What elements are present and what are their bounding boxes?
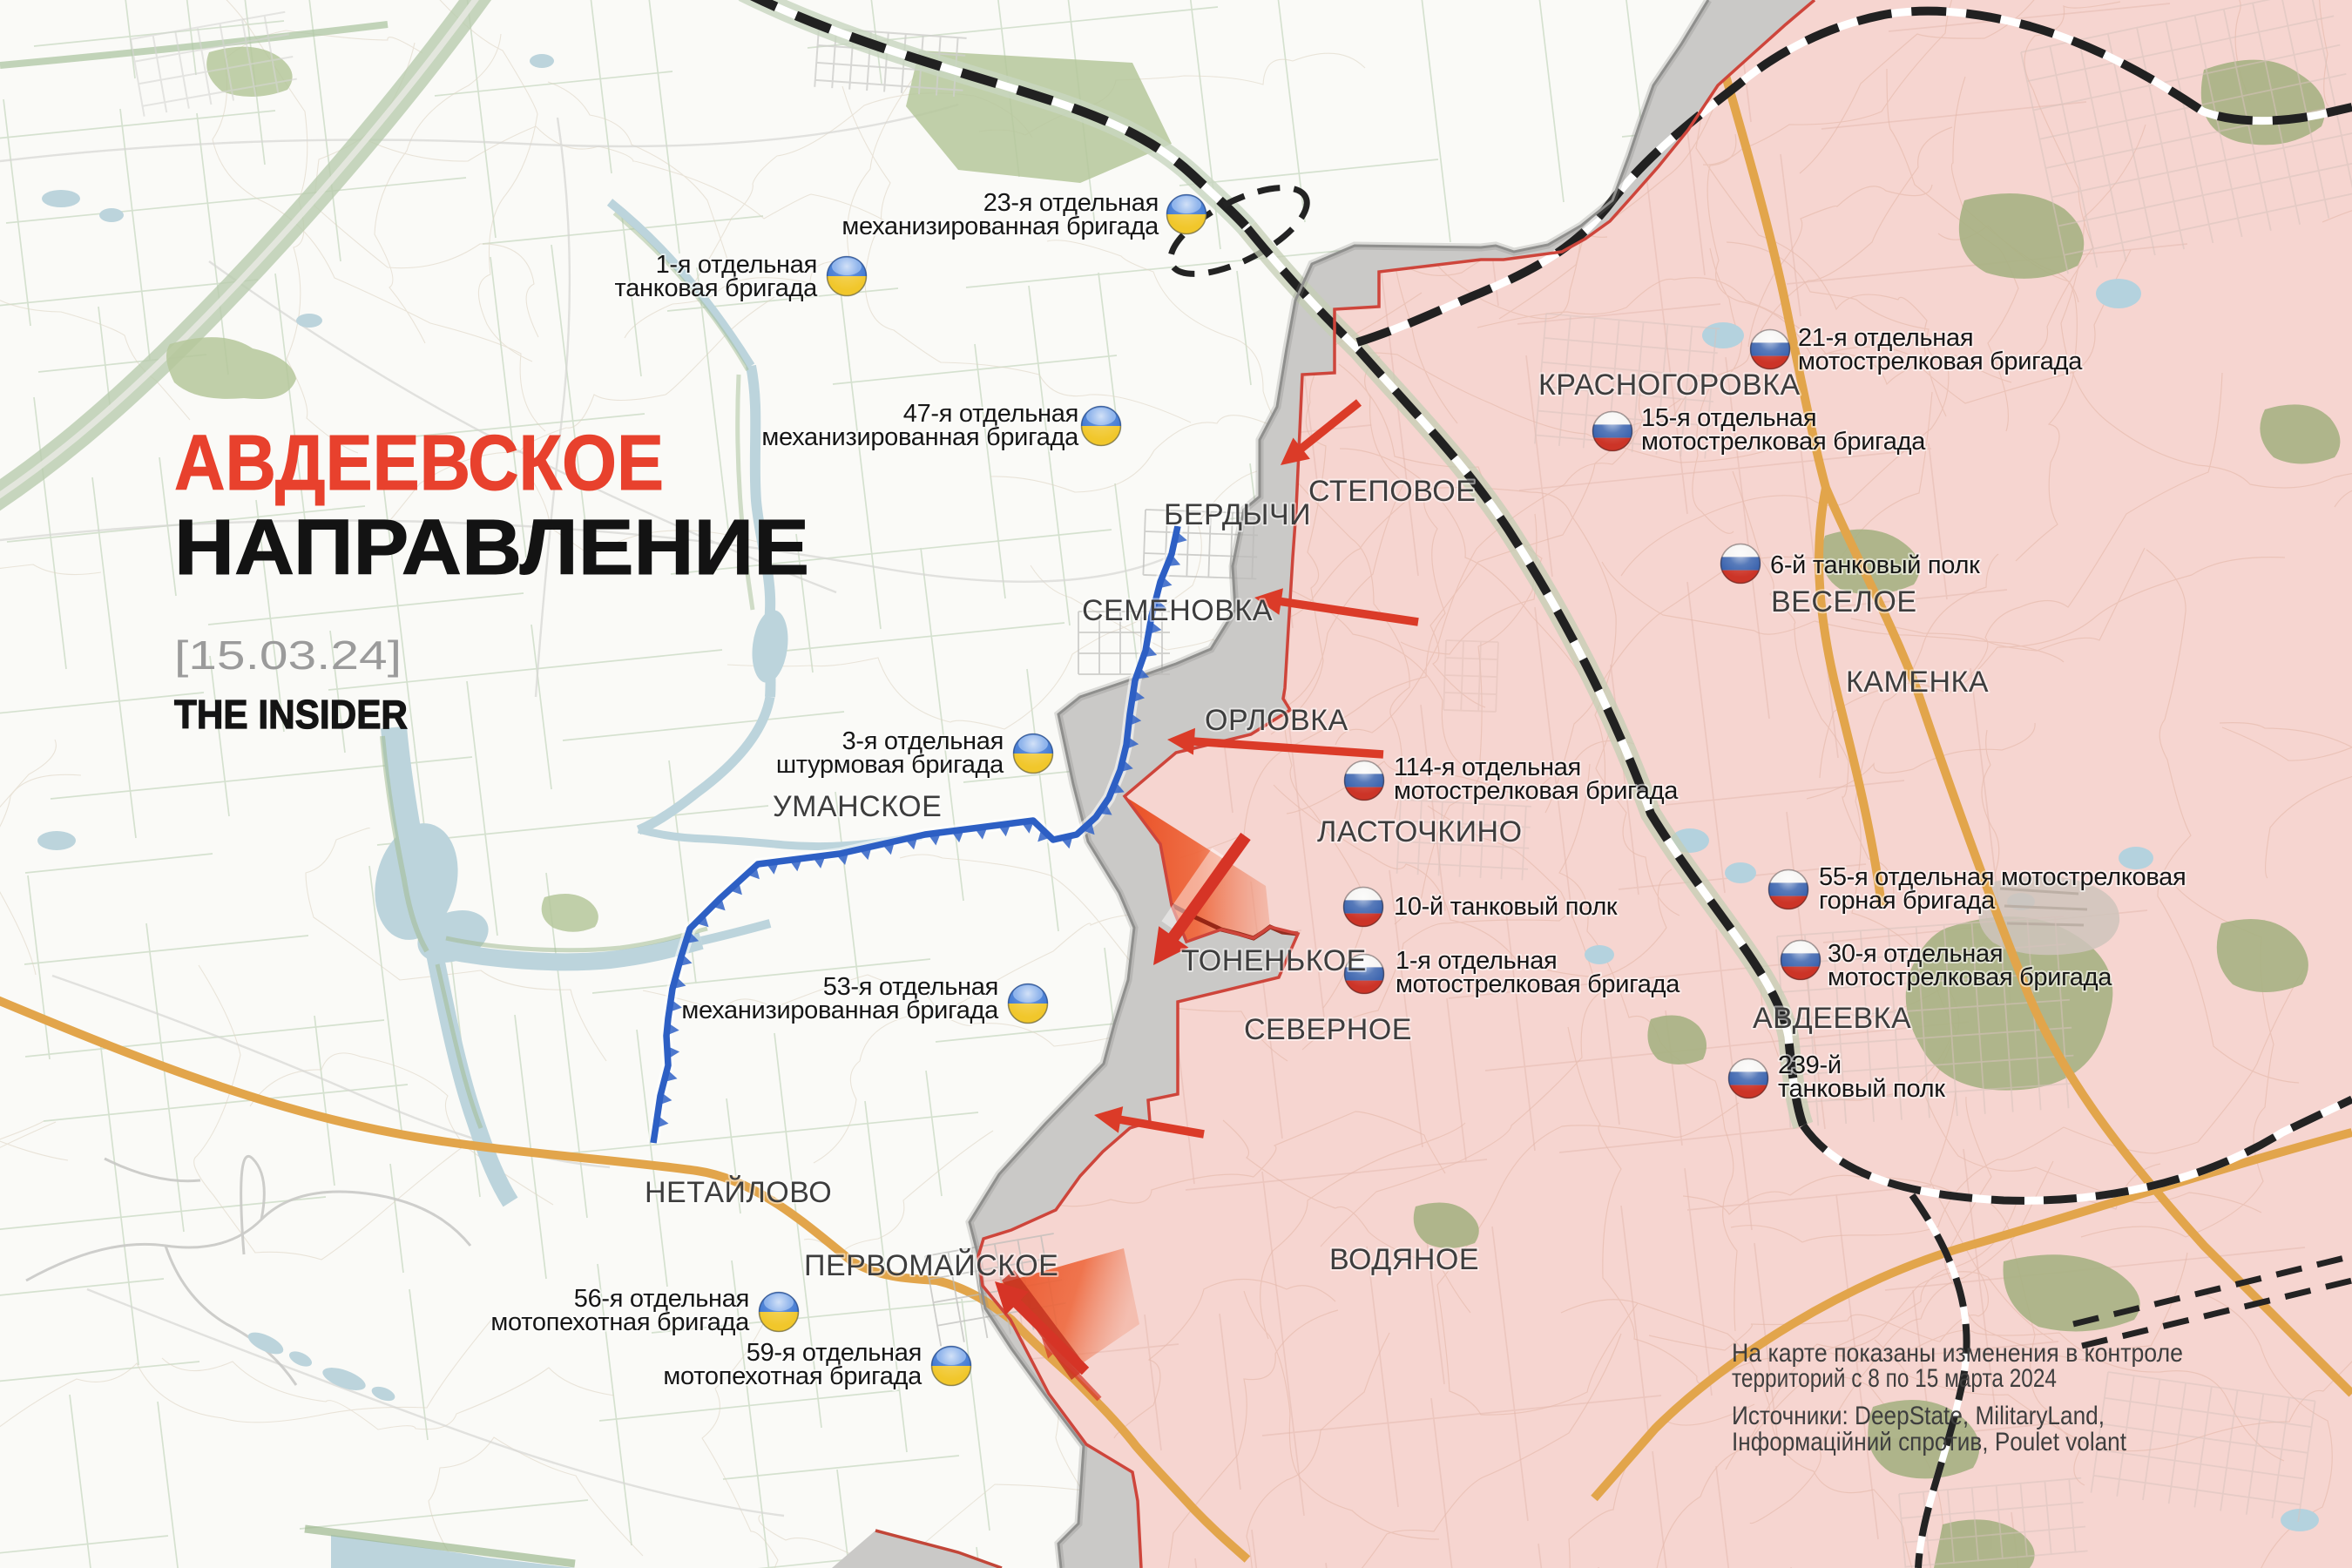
svg-text:мотострелковая бригада: мотострелковая бригада [1396,970,1680,998]
svg-text:КРАСНОГОРОВКА: КРАСНОГОРОВКА [1538,368,1801,402]
svg-text:Інформаційний спротив, Poulet: Інформаційний спротив, Poulet volant [1732,1428,2127,1456]
svg-text:АВДЕЕВКА: АВДЕЕВКА [1753,1002,1911,1035]
svg-text:ЛАСТОЧКИНО: ЛАСТОЧКИНО [1317,815,1523,848]
svg-text:Источники: DeepState, Military: Источники: DeepState, MilitaryLand, [1732,1402,2105,1430]
svg-text:СЕВЕРНОЕ: СЕВЕРНОЕ [1244,1013,1412,1046]
svg-text:БЕРДЫЧИ: БЕРДЫЧИ [1164,498,1311,531]
svg-text:танковая бригада: танковая бригада [615,274,819,302]
svg-text:АВДЕЕВСКОЕ: АВДЕЕВСКОЕ [174,420,664,507]
svg-text:СТЕПОВОЕ: СТЕПОВОЕ [1308,475,1476,508]
svg-text:СЕМЕНОВКА: СЕМЕНОВКА [1082,594,1273,627]
svg-text:мотопехотная бригада: мотопехотная бригада [490,1308,750,1336]
svg-text:мотострелковая бригада: мотострелковая бригада [1641,428,1926,456]
svg-text:УМАНСКОЕ: УМАНСКОЕ [773,790,942,823]
svg-text:КАМЕНКА: КАМЕНКА [1846,666,1989,699]
svg-text:механизированная бригада: механизированная бригада [681,997,999,1024]
svg-text:мотострелковая бригада: мотострелковая бригада [1798,348,2083,375]
svg-text:[15.03.24]: [15.03.24] [174,632,402,678]
svg-text:10-й танковый полк: 10-й танковый полк [1394,893,1618,921]
svg-text:механизированная бригада: механизированная бригада [841,213,1159,240]
svg-text:мотопехотная бригада: мотопехотная бригада [663,1362,923,1390]
svg-text:территорий с 8 по 15 марта 202: территорий с 8 по 15 марта 2024 [1732,1364,2057,1393]
svg-text:ВЕСЕЛОЕ: ВЕСЕЛОЕ [1771,585,1917,618]
svg-text:THE INSIDER: THE INSIDER [174,692,408,737]
svg-text:горная бригада: горная бригада [1819,887,1996,915]
svg-text:механизированная бригада: механизированная бригада [761,423,1079,451]
svg-text:мотострелковая бригада: мотострелковая бригада [1828,963,2112,991]
svg-text:ТОНЕНЬКОЕ: ТОНЕНЬКОЕ [1181,944,1367,977]
svg-text:ВОДЯНОЕ: ВОДЯНОЕ [1329,1243,1479,1276]
svg-text:штурмовая бригада: штурмовая бригада [776,751,1004,779]
svg-text:НАПРАВЛЕНИЕ: НАПРАВЛЕНИЕ [174,504,809,591]
svg-text:НЕТАЙЛОВО: НЕТАЙЛОВО [645,1176,832,1209]
svg-text:мотострелковая бригада: мотострелковая бригада [1394,777,1679,805]
svg-text:ПЕРВОМАЙСКОЕ: ПЕРВОМАЙСКОЕ [804,1249,1058,1282]
svg-text:ОРЛОВКА: ОРЛОВКА [1205,704,1348,737]
svg-text:танковый полк: танковый полк [1778,1075,1945,1103]
svg-text:6-й танковый полк: 6-й танковый полк [1770,551,1980,579]
